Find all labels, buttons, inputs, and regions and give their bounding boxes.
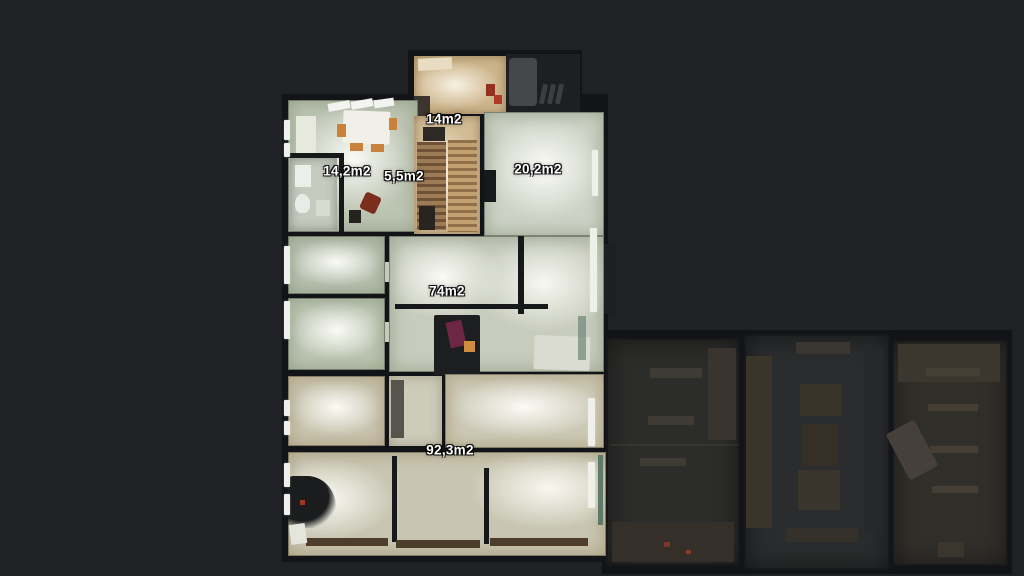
sink <box>316 200 330 216</box>
annex1-red-speck-1 <box>664 542 670 547</box>
baseboard-debris-1 <box>306 538 388 546</box>
window-marker <box>284 494 290 515</box>
annex3-shelf-1 <box>926 368 980 376</box>
annex1-side-clutter <box>708 348 736 440</box>
dining-chair-4 <box>371 144 384 152</box>
teal-floor-edge <box>578 316 586 360</box>
annex2-side-clutter <box>746 356 772 528</box>
window-marker <box>590 228 597 312</box>
window-marker <box>588 398 595 446</box>
interior-wall-bot-stub-2 <box>484 468 489 544</box>
annex2-center-block-2 <box>802 424 838 466</box>
room-bot-right-floor[interactable] <box>445 374 604 448</box>
annex2-bottom-bar <box>786 528 858 542</box>
chimney-block <box>509 58 537 106</box>
area-label-74m2: 74m2 <box>429 284 465 299</box>
window-marker <box>284 246 290 284</box>
annex2-right-column <box>864 348 884 532</box>
teal-wall-edge <box>598 455 603 525</box>
room-mid-left-1-floor[interactable] <box>288 236 385 294</box>
red-speck <box>300 500 305 505</box>
door-gap-2 <box>385 322 389 342</box>
window-marker <box>284 143 290 157</box>
orange-box <box>464 341 475 352</box>
area-label-5-5m2: 5,5m2 <box>384 169 424 184</box>
interior-wall-bot-stub-1 <box>392 456 397 542</box>
area-label-14-2m2: 14,2m2 <box>323 164 371 179</box>
annex1-red-speck-2 <box>686 550 691 554</box>
area-label-14m2: 14m2 <box>426 112 462 127</box>
interior-wall-hall-south <box>395 304 522 309</box>
floorplan-viewer-canvas[interactable]: 14m2 14,2m2 5,5m2 20,2m2 74m2 92,3m2 <box>0 0 1024 576</box>
interior-wall-stub-bedroom <box>484 170 496 202</box>
annex3-shelf-3 <box>930 446 978 453</box>
window-marker <box>588 462 595 508</box>
attic-red-object-2 <box>494 95 502 104</box>
annex1-shelf-1 <box>650 368 702 378</box>
annex3-shelf-2 <box>928 404 978 411</box>
annex3-top-patch <box>898 344 1000 382</box>
dining-table <box>342 110 390 145</box>
dining-chair-2 <box>389 118 397 130</box>
stair-landing-box <box>419 206 435 230</box>
area-label-20-2m2: 20,2m2 <box>514 162 562 177</box>
dark-furniture <box>349 210 361 223</box>
white-box <box>289 523 308 545</box>
baseboard-debris-3 <box>490 538 588 546</box>
window-marker <box>284 421 290 435</box>
toilet <box>295 194 310 213</box>
baseboard-debris-2 <box>396 540 480 548</box>
door-gap-1 <box>385 262 389 282</box>
bathtub <box>295 165 311 187</box>
annex1-shelf-2 <box>648 416 694 425</box>
annex2-center-block-3 <box>798 470 840 510</box>
room-bot-left-floor[interactable] <box>288 376 385 446</box>
window-marker <box>284 301 290 339</box>
annex1-shelf-3 <box>640 458 686 466</box>
annex2-center-block-1 <box>800 384 842 416</box>
dining-chair-3 <box>350 143 363 151</box>
window-marker <box>284 400 290 416</box>
interior-wall-hall-east <box>518 236 524 314</box>
staircase-right-flight <box>448 140 477 232</box>
window-marker <box>592 150 598 196</box>
window-marker <box>284 120 290 140</box>
chimney-shaft <box>391 380 404 438</box>
annex3-bottom-box <box>938 542 964 557</box>
area-label-92-3m2: 92,3m2 <box>426 443 474 458</box>
interior-wall-hall-stub <box>518 304 548 309</box>
window-marker <box>284 463 290 487</box>
annex1-floor-seam <box>610 444 738 446</box>
dining-chair-1 <box>337 124 346 137</box>
attic-cabinet <box>418 57 453 71</box>
annex1-floor-clutter <box>612 522 734 562</box>
room-mid-left-2-floor[interactable] <box>288 298 385 370</box>
annex2-top-bar <box>796 342 850 354</box>
stair-opening <box>423 127 445 141</box>
annex3-shelf-4 <box>932 486 978 493</box>
